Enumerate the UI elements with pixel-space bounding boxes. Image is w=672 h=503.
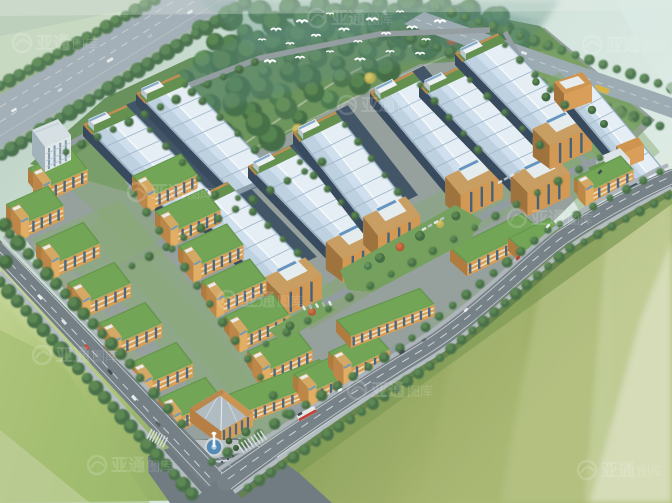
svg-text:亚通: 亚通 <box>111 456 145 475</box>
svg-text:亚通: 亚通 <box>56 346 90 365</box>
svg-text:图库: 图库 <box>72 37 98 52</box>
svg-text:图库: 图库 <box>92 349 118 364</box>
svg-text:图库: 图库 <box>397 99 423 114</box>
svg-text:亚通: 亚通 <box>361 96 395 115</box>
svg-text:图库: 图库 <box>187 186 213 201</box>
svg-text:亚通: 亚通 <box>331 9 365 28</box>
svg-text:亚通: 亚通 <box>371 381 405 400</box>
svg-text:图库: 图库 <box>277 294 303 309</box>
svg-text:图库: 图库 <box>637 464 663 479</box>
svg-text:亚通: 亚通 <box>36 34 70 53</box>
svg-text:图库: 图库 <box>147 459 173 474</box>
svg-text:图库: 图库 <box>367 12 393 27</box>
svg-text:亚通: 亚通 <box>606 36 640 55</box>
svg-text:亚通: 亚通 <box>151 183 185 202</box>
svg-text:图库: 图库 <box>407 384 433 399</box>
svg-text:亚通: 亚通 <box>601 461 635 480</box>
svg-text:亚通: 亚通 <box>241 291 275 310</box>
svg-text:图库: 图库 <box>567 212 593 227</box>
svg-text:亚通: 亚通 <box>531 209 565 228</box>
